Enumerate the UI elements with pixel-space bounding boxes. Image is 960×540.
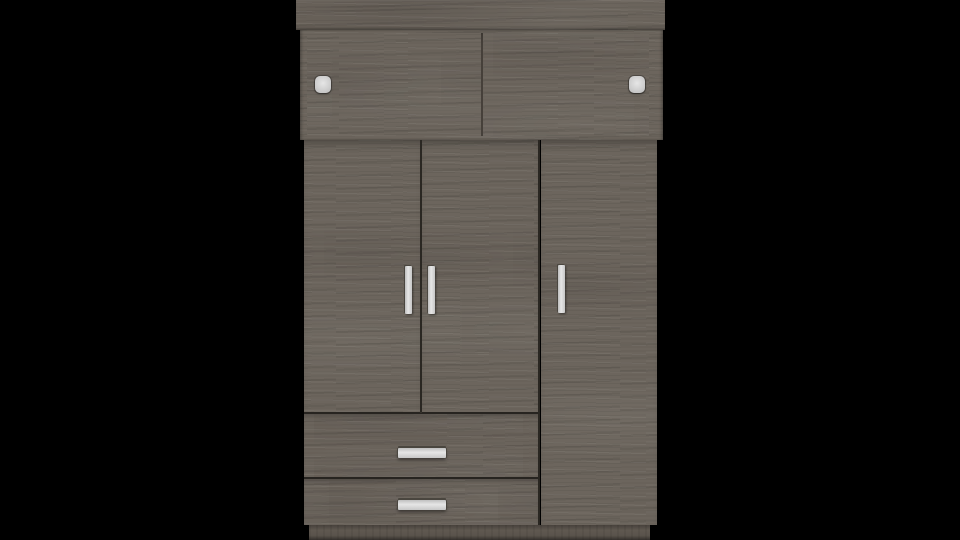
- top-cabinet: [300, 30, 663, 140]
- wardrobe: [296, 0, 665, 540]
- hinged-door-left: [304, 140, 420, 412]
- wardrobe-crown-panel: [296, 0, 665, 30]
- scene: [0, 0, 960, 540]
- hinged-door-left-bar-handle: [405, 266, 412, 314]
- drawer-top: [304, 414, 538, 477]
- sliding-door-left-square-handle: [315, 76, 331, 93]
- hinged-door-right: [541, 140, 657, 525]
- sliding-door-right-square-handle: [629, 76, 645, 93]
- wardrobe-main-body: [304, 140, 657, 525]
- sliding-door-right: [483, 33, 649, 136]
- plinth-base: [309, 525, 650, 540]
- hinged-door-right-bar-handle: [558, 265, 565, 313]
- door-gap-center-right: [538, 140, 540, 525]
- hinged-door-center-bar-handle: [428, 266, 435, 314]
- sliding-door-left: [307, 33, 481, 136]
- sliding-door-recess: [307, 33, 649, 136]
- drawer-top-bar-handle: [398, 448, 446, 458]
- hinged-door-center: [422, 140, 538, 412]
- drawer-bottom-bar-handle: [398, 500, 446, 510]
